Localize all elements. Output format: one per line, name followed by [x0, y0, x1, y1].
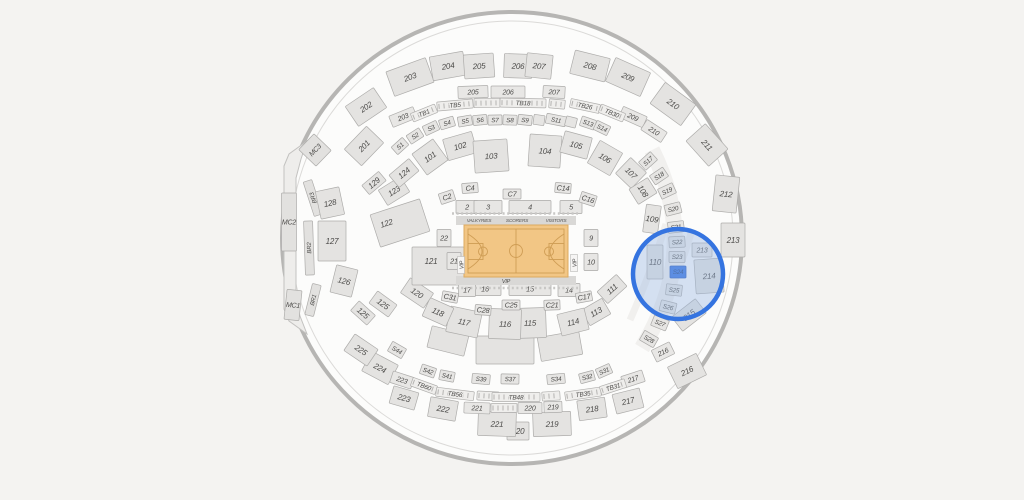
section-219[interactable]: 219 [544, 401, 562, 413]
section-BR2[interactable]: BR2 [304, 221, 315, 275]
section-C21[interactable]: C21 [544, 300, 560, 311]
section-S8[interactable]: S8 [503, 115, 517, 125]
section-207[interactable]: 207 [525, 53, 553, 80]
section-TB18[interactable]: TB18 [500, 98, 546, 108]
section-C25[interactable]: C25 [502, 300, 520, 310]
section-C7[interactable]: C7 [503, 189, 521, 199]
section-207[interactable]: 207 [543, 85, 566, 98]
section-4[interactable]: 4 [509, 201, 551, 214]
section-205[interactable]: 205 [463, 53, 495, 79]
section-5[interactable]: 5 [560, 201, 582, 214]
section-127[interactable]: 127 [318, 221, 346, 261]
section-S7[interactable]: S7 [488, 115, 502, 125]
section-213[interactable]: 213 [721, 223, 745, 257]
section-22[interactable]: 22 [437, 230, 451, 247]
section-MC1[interactable]: MC1 [284, 289, 302, 320]
section-9[interactable]: 9 [584, 230, 598, 247]
section-MC2[interactable]: MC2 [282, 193, 297, 251]
section-103[interactable]: 103 [473, 139, 509, 173]
section-220[interactable]: 220 [518, 403, 542, 414]
section-219[interactable]: 219 [533, 411, 572, 436]
section-205[interactable]: 205 [458, 85, 488, 98]
section-C28[interactable]: C28 [475, 304, 492, 315]
section-104[interactable]: 104 [528, 134, 562, 168]
section-221[interactable]: 221 [464, 402, 490, 414]
section-206[interactable]: 206 [491, 86, 525, 98]
section-block [491, 404, 517, 413]
section-block [476, 336, 534, 364]
section-S6[interactable]: S6 [473, 114, 488, 125]
section-C14[interactable]: C14 [555, 182, 572, 193]
vip-tab-right[interactable] [571, 255, 578, 272]
vip-tab-left[interactable] [458, 257, 465, 274]
arena-seat-map: MC32012022032042052062072082092102112122… [0, 0, 1024, 500]
section-221[interactable]: 221 [478, 411, 517, 436]
section-block [542, 391, 561, 401]
section-116[interactable]: 116 [488, 308, 521, 339]
section-S34[interactable]: S34 [547, 373, 566, 385]
court: VALKYRIESSCORERSVISITORSVIPVIPVIP [452, 214, 578, 289]
section-block [549, 99, 566, 109]
section-212[interactable]: 212 [712, 175, 740, 213]
court-top-strip [456, 216, 576, 225]
section-218[interactable]: 218 [577, 397, 608, 421]
section-block [474, 98, 500, 107]
section-TB48[interactable]: TB48 [492, 393, 540, 402]
section-S39[interactable]: S39 [472, 373, 491, 385]
section-S37[interactable]: S37 [501, 374, 519, 384]
section-3[interactable]: 3 [474, 201, 502, 214]
section-C4[interactable]: C4 [462, 182, 479, 193]
section-block [564, 116, 577, 128]
section-S9[interactable]: S9 [518, 114, 533, 125]
section-10[interactable]: 10 [584, 254, 598, 271]
seat-map-page: MC32012022032042052062072082092102112122… [0, 0, 1024, 500]
section-block [533, 114, 545, 125]
section-S5[interactable]: S5 [457, 115, 473, 127]
section-17[interactable]: 17 [459, 284, 476, 297]
